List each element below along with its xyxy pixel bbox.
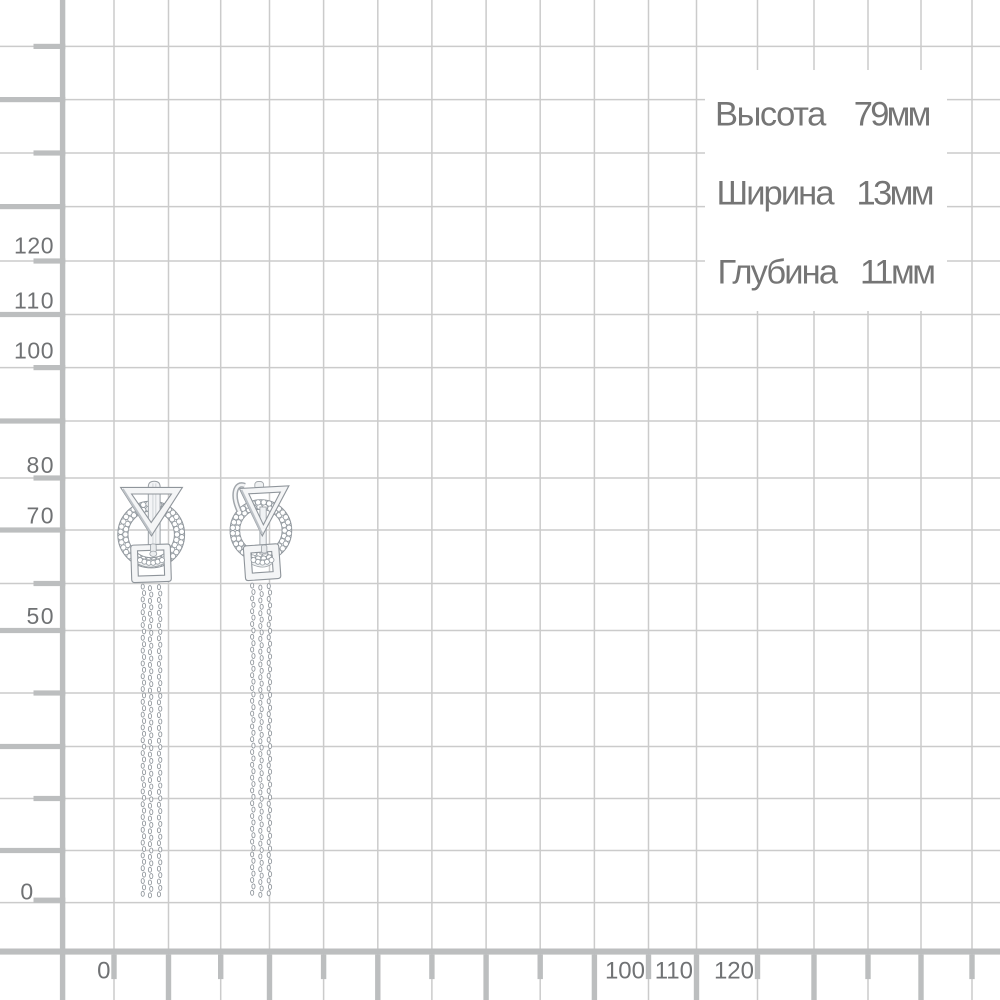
svg-text:50: 50 [27, 603, 54, 629]
svg-text:0: 0 [97, 958, 110, 985]
svg-text:100: 100 [605, 958, 645, 985]
svg-text:110: 110 [14, 287, 54, 313]
svg-text:13мм: 13мм [857, 174, 935, 212]
svg-text:120: 120 [14, 232, 54, 258]
svg-text:110: 110 [655, 958, 693, 985]
svg-text:100: 100 [14, 338, 54, 364]
svg-text:Ширина: Ширина [717, 174, 836, 212]
svg-text:Глубина: Глубина [718, 254, 839, 292]
svg-text:70: 70 [27, 503, 54, 529]
svg-text:79мм: 79мм [854, 95, 932, 133]
svg-text:80: 80 [27, 452, 54, 478]
svg-text:11мм: 11мм [860, 254, 936, 292]
svg-text:0: 0 [20, 879, 33, 905]
svg-text:120: 120 [714, 958, 754, 985]
svg-text:Высота: Высота [715, 95, 827, 133]
